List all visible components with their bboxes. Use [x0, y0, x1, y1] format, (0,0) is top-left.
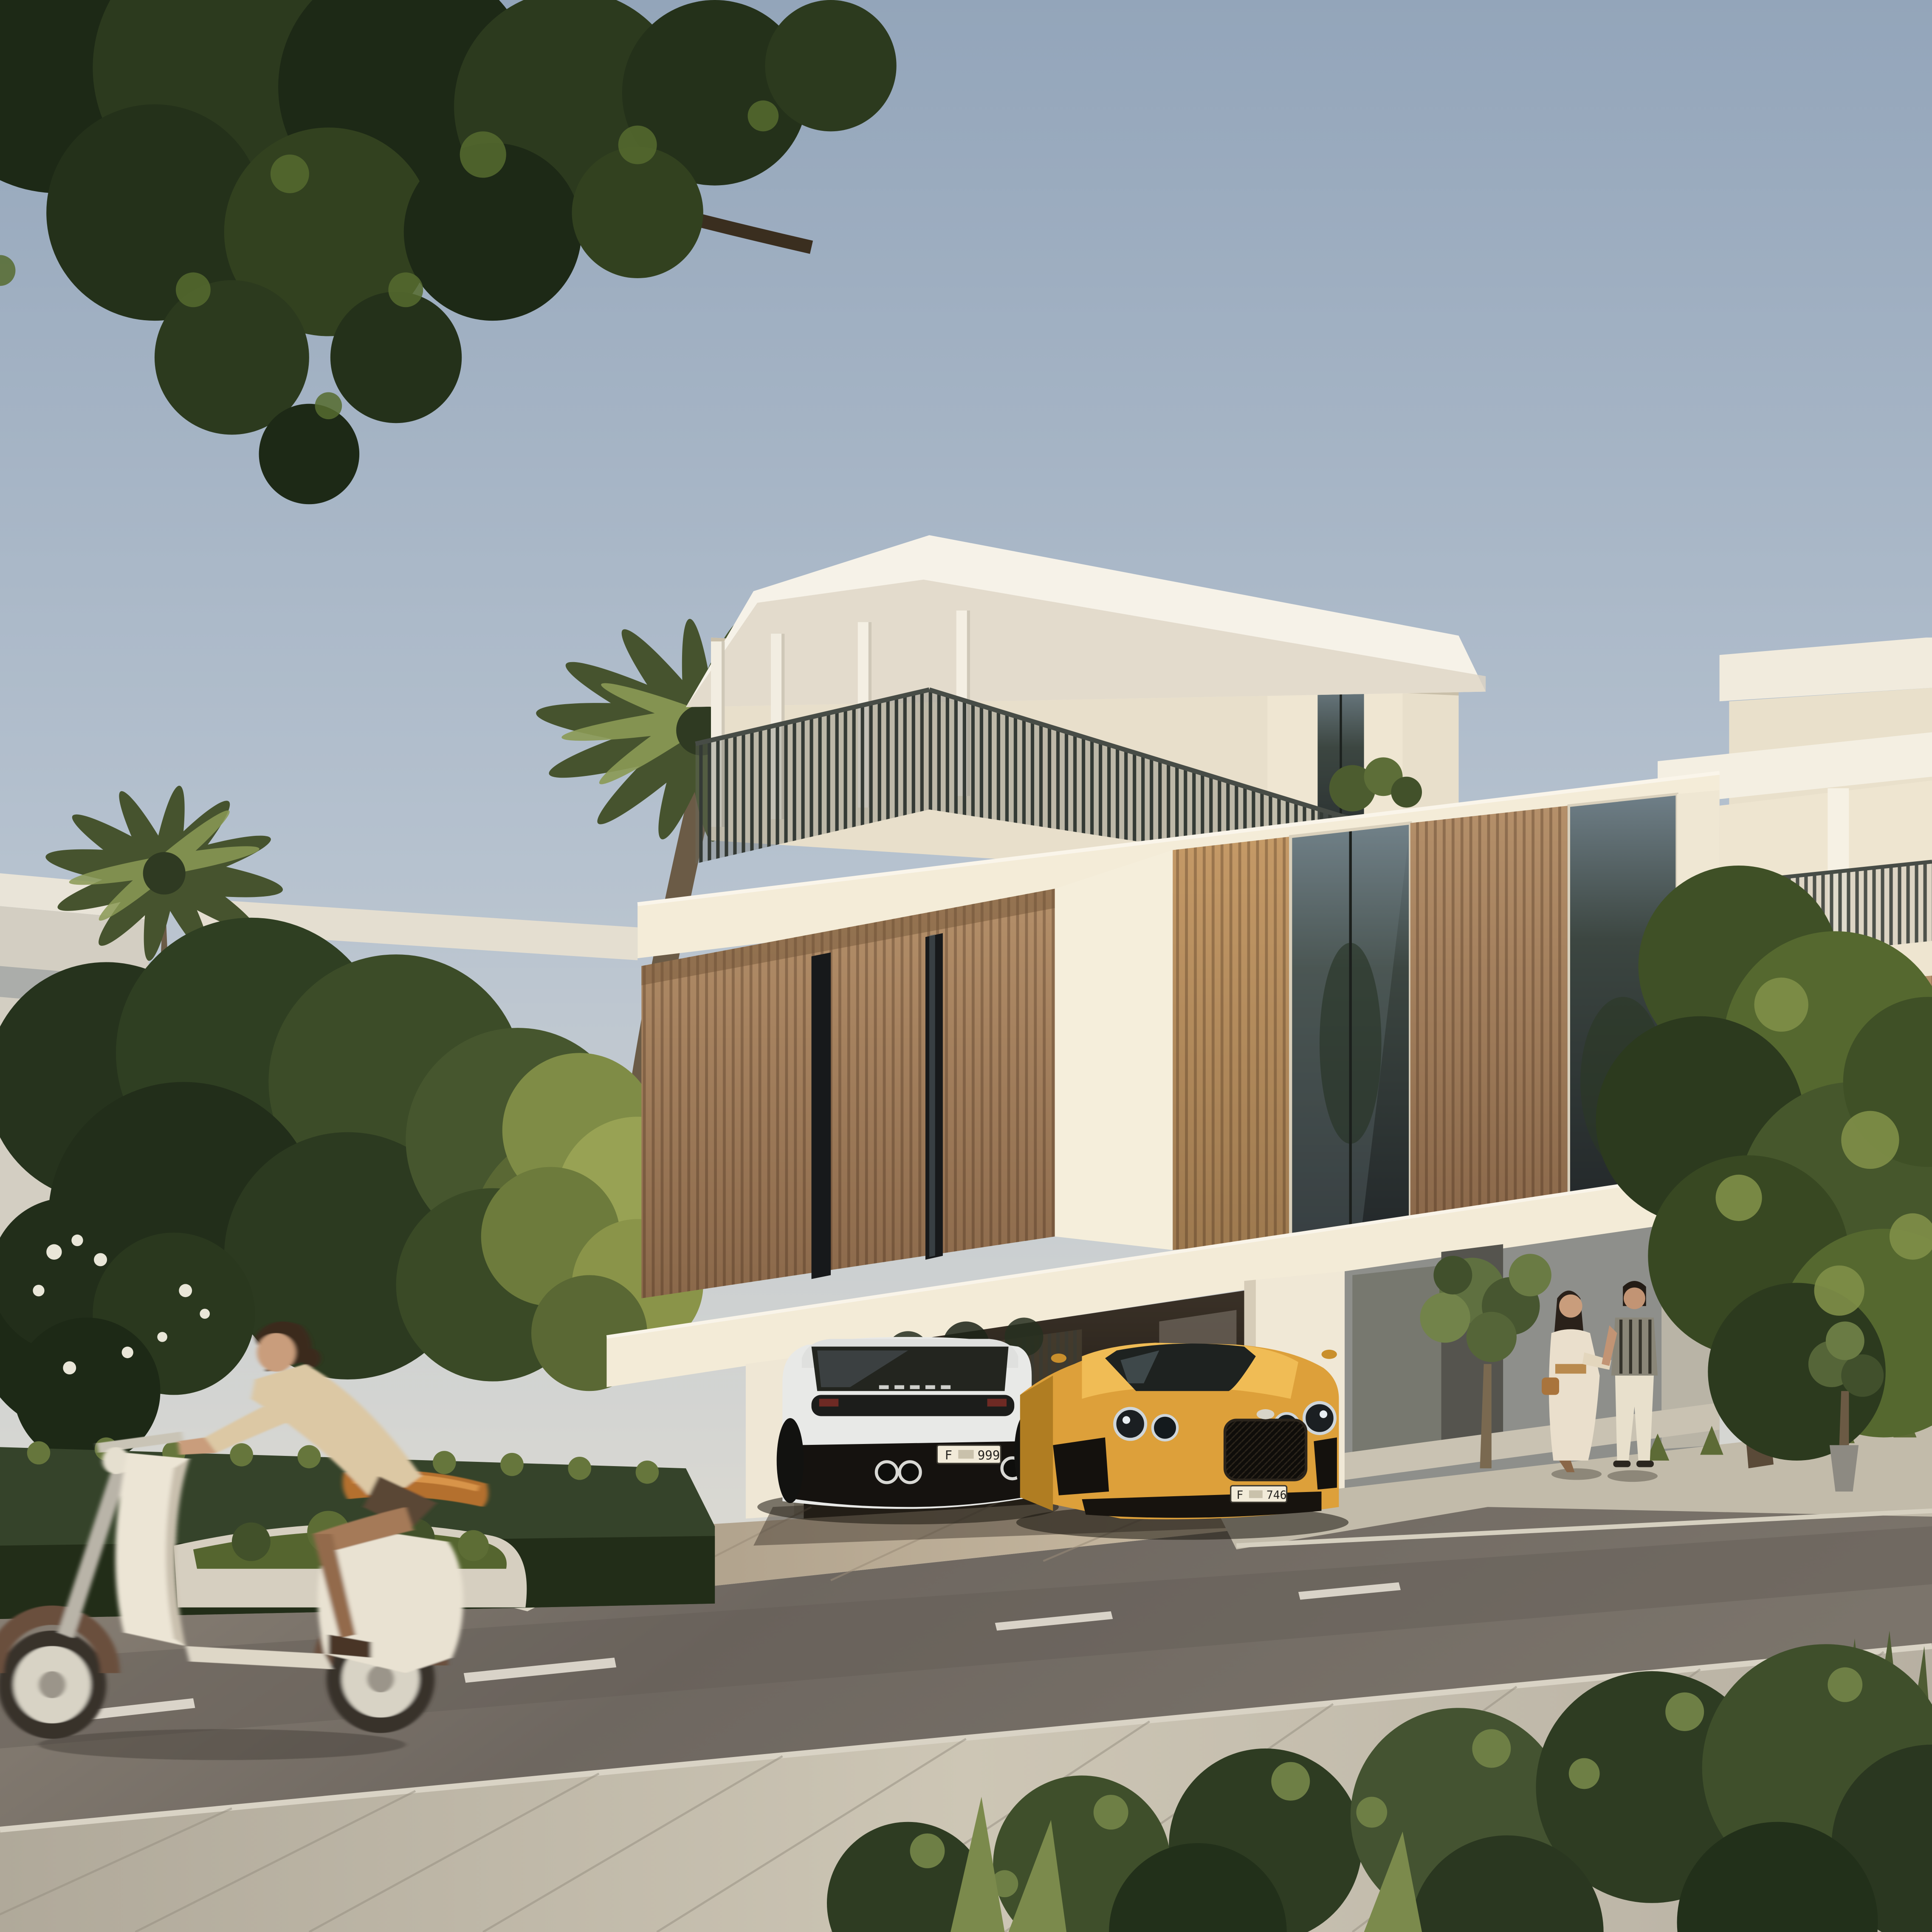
coupe-intake-left [1053, 1437, 1109, 1495]
suv-plate-number: 999 [978, 1448, 1000, 1462]
svg-text:999: 999 [978, 1448, 1000, 1462]
woman-dress [1549, 1329, 1600, 1461]
suv-plate-prefix: F [945, 1448, 952, 1462]
svg-text:746: 746 [1266, 1489, 1287, 1502]
coupe-mirror-left [1051, 1354, 1066, 1363]
front-wood-panel-2-slats [1410, 806, 1569, 1225]
woman-belt [1555, 1364, 1586, 1374]
front-window-1 [1291, 823, 1410, 1238]
rider-head [257, 1333, 296, 1372]
suv-license-plate: F 999 [937, 1445, 1001, 1464]
coupe-car: F 746 [1016, 1343, 1348, 1540]
coupe-plate-number: 746 [1266, 1489, 1287, 1502]
svg-text:F: F [1236, 1489, 1243, 1502]
woman-face [1559, 1295, 1582, 1318]
corner-chamfer [1055, 850, 1173, 1250]
coupe-badge [1257, 1409, 1275, 1419]
man-sandal-2 [1636, 1461, 1654, 1467]
coupe-mirror-right [1322, 1350, 1337, 1359]
front-wood-panel-1-slats [1173, 837, 1290, 1250]
coupe-plate-prefix: F [1236, 1489, 1243, 1502]
coupe-grille-mesh [1225, 1420, 1306, 1480]
coupe-plate-emblem [1249, 1490, 1263, 1498]
man-sandal-1 [1613, 1461, 1630, 1467]
entrance-recess-wall [1352, 1266, 1441, 1459]
suv-car: F 999 [757, 1337, 1059, 1524]
man-face [1624, 1287, 1645, 1309]
svg-text:F: F [945, 1448, 952, 1462]
window-slit-1 [812, 953, 831, 1279]
coupe-intake-right [1314, 1437, 1337, 1489]
street-scene: F 999 F [0, 0, 1932, 1932]
coupe-side-panel [1020, 1376, 1053, 1511]
coupe-license-plate: F 746 [1231, 1486, 1287, 1502]
scooter-shadow [39, 1729, 406, 1760]
suv-plate-emblem [958, 1450, 973, 1458]
suv-wheel-left [777, 1418, 804, 1503]
woman-handbag [1542, 1377, 1559, 1395]
render-canvas: F 999 F [0, 0, 1932, 1932]
suv-taillight-bar [812, 1395, 1015, 1416]
